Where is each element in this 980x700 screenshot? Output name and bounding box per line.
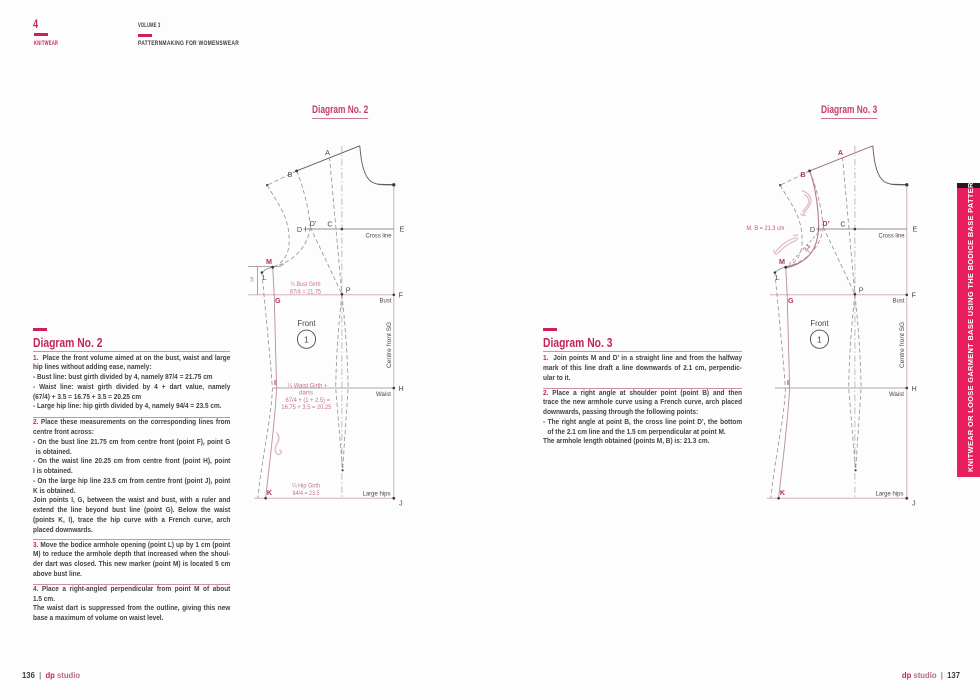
svg-text:Centre front SG: Centre front SG bbox=[386, 322, 393, 368]
svg-text:Waist: Waist bbox=[376, 391, 391, 398]
svg-text:H: H bbox=[399, 384, 404, 393]
svg-text:J: J bbox=[912, 499, 916, 508]
svg-text:G: G bbox=[788, 296, 794, 305]
svg-text:F: F bbox=[399, 291, 404, 300]
svg-text:¼ Hip Girth: ¼ Hip Girth bbox=[292, 483, 320, 490]
svg-text:E: E bbox=[913, 225, 918, 234]
svg-text:Front: Front bbox=[810, 319, 829, 328]
svg-text:I: I bbox=[274, 378, 276, 387]
svg-text:D: D bbox=[297, 225, 302, 234]
svg-text:Centre front SG: Centre front SG bbox=[899, 322, 906, 368]
svg-text:darts: darts bbox=[299, 390, 314, 397]
svg-text:M: M bbox=[266, 257, 272, 266]
svg-text:¼ Bust Girth: ¼ Bust Girth bbox=[291, 281, 321, 288]
svg-text:P: P bbox=[346, 286, 351, 295]
svg-text:C: C bbox=[327, 219, 332, 228]
svg-text:G: G bbox=[275, 296, 281, 305]
svg-text:Bust: Bust bbox=[380, 298, 392, 305]
svg-text:16.75 + 3.5 = 20.25: 16.75 + 3.5 = 20.25 bbox=[281, 404, 331, 411]
svg-text:67/4 + (1 + 2.5) =: 67/4 + (1 + 2.5) = bbox=[286, 397, 331, 404]
svg-text:Cross line: Cross line bbox=[879, 233, 905, 240]
svg-text:L: L bbox=[263, 273, 267, 282]
svg-text:Cross line: Cross line bbox=[366, 233, 392, 240]
svg-text:A: A bbox=[325, 148, 330, 157]
svg-text:B: B bbox=[288, 170, 293, 179]
svg-text:Bust: Bust bbox=[893, 298, 905, 305]
svg-text:J: J bbox=[399, 499, 403, 508]
svg-text:K: K bbox=[780, 488, 786, 497]
svg-text:Large hips: Large hips bbox=[363, 491, 392, 498]
svg-text:I: I bbox=[787, 378, 789, 387]
svg-text:M, B = 21.3 cm: M, B = 21.3 cm bbox=[747, 225, 785, 232]
svg-text:C: C bbox=[840, 219, 845, 228]
svg-text:D: D bbox=[810, 225, 815, 234]
svg-text:B: B bbox=[800, 170, 805, 179]
svg-text:1: 1 bbox=[817, 334, 822, 344]
svg-text:87/4 = 21.75: 87/4 = 21.75 bbox=[290, 288, 321, 295]
svg-text:H: H bbox=[912, 384, 917, 393]
svg-text:5: 5 bbox=[250, 277, 254, 284]
svg-text:Large hips: Large hips bbox=[876, 491, 905, 498]
svg-text:P: P bbox=[859, 286, 864, 295]
svg-text:A: A bbox=[838, 148, 843, 157]
svg-text:¼ Waist Girth +: ¼ Waist Girth + bbox=[287, 382, 327, 389]
svg-text:L: L bbox=[776, 273, 780, 282]
svg-text:E: E bbox=[400, 225, 405, 234]
svg-text:1: 1 bbox=[304, 334, 309, 344]
svg-text:Waist: Waist bbox=[889, 391, 904, 398]
svg-text:D’: D’ bbox=[822, 219, 829, 228]
svg-text:Front: Front bbox=[297, 319, 316, 328]
svg-text:D’: D’ bbox=[310, 219, 317, 228]
svg-text:F: F bbox=[912, 291, 917, 300]
svg-text:K: K bbox=[267, 488, 273, 497]
svg-text:94/4 = 23.5: 94/4 = 23.5 bbox=[293, 490, 320, 497]
svg-text:M: M bbox=[779, 257, 785, 266]
